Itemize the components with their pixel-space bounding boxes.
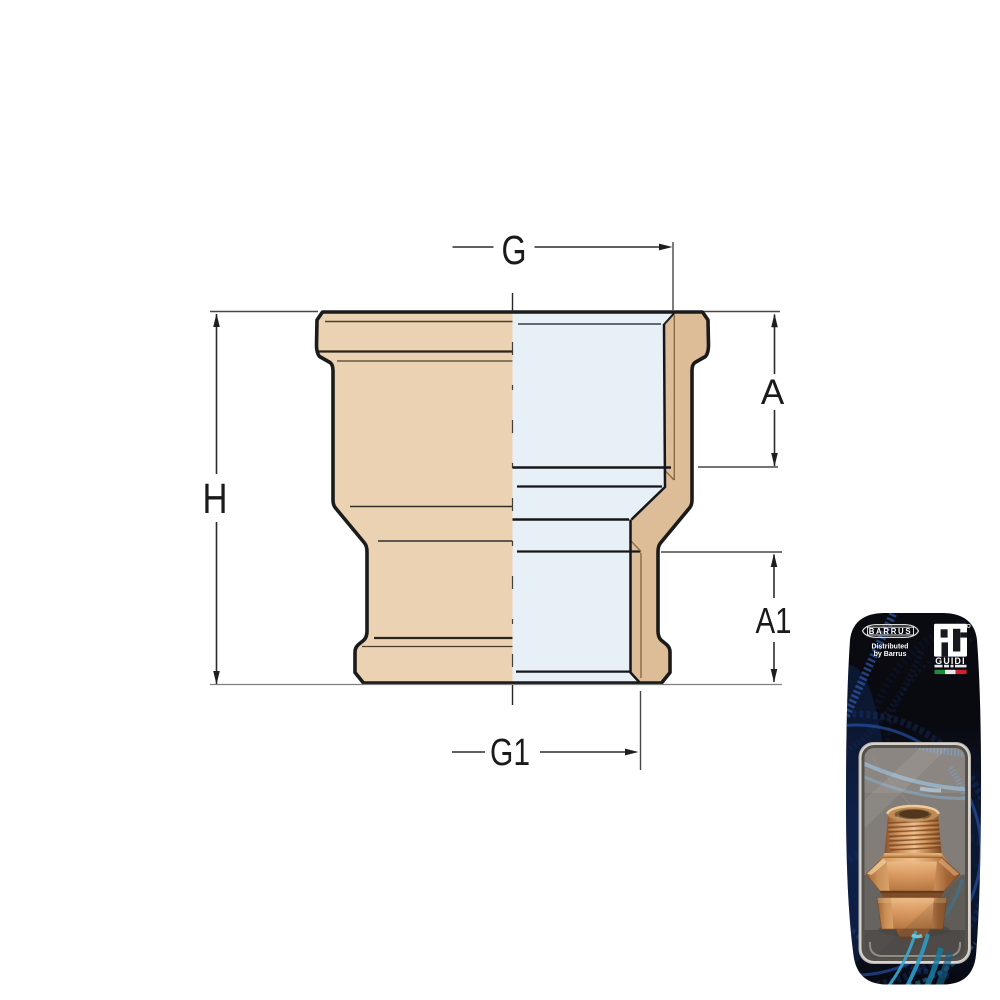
- svg-text:G1: G1: [490, 732, 530, 774]
- svg-text:H: H: [203, 475, 228, 523]
- svg-text:BARRUS: BARRUS: [869, 627, 913, 636]
- svg-text:A1: A1: [756, 600, 792, 641]
- svg-text:by Barrus: by Barrus: [874, 651, 907, 658]
- svg-text:G: G: [502, 227, 527, 273]
- svg-text:GUIDI: GUIDI: [935, 656, 965, 666]
- svg-text:Distributed: Distributed: [872, 644, 909, 651]
- svg-text:A: A: [761, 373, 785, 412]
